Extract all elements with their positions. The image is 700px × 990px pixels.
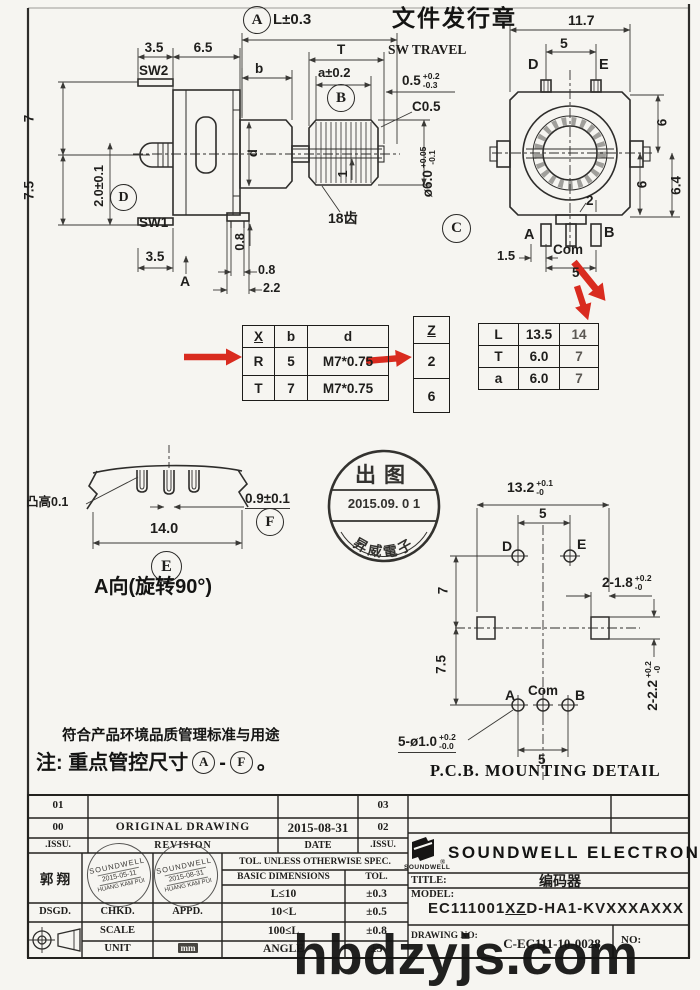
company-name: SOUNDWELL ELECTRONICS — [448, 844, 686, 863]
lta-row-a: a 6.0 7 — [479, 368, 599, 390]
dim-dia6-val: ø6.0 — [421, 170, 436, 197]
note-dash: - — [219, 752, 226, 774]
dim-b: b — [255, 62, 263, 77]
z-value-6: 6 — [414, 379, 450, 413]
pcb-hole-e: E — [577, 537, 586, 552]
balloon-d: D — [110, 184, 137, 211]
model-label: MODEL: — [411, 889, 454, 900]
dim-d-label: d — [246, 145, 260, 161]
lta-a-v2: 7 — [560, 368, 599, 390]
front-view — [490, 70, 652, 252]
drawing-sheet: 昇威電子 — [0, 0, 700, 990]
note-balloon-f: F — [230, 751, 253, 774]
lta-t-v1: 6.0 — [519, 346, 560, 368]
rev-row1-no: 01 — [28, 799, 88, 811]
dim-7-5: 7.5 — [23, 170, 38, 210]
note-balloon-a: A — [192, 751, 215, 774]
dim-dia6: ø6.0 +0.05-0.1 — [419, 127, 437, 217]
bump-label: 凸高0.1 — [26, 496, 68, 510]
soundwell-logo-icon — [412, 837, 434, 861]
lta-row-t: T 6.0 7 — [479, 346, 599, 368]
pcb-218-val: 2-1.8 — [602, 576, 633, 591]
dim-t: T — [337, 43, 345, 58]
dim-7: 7 — [23, 98, 38, 138]
pcb-13-2-dn: -0 — [536, 488, 553, 497]
label-sw-travel: SW TRAVEL — [388, 43, 466, 58]
basic-dims-label: BASIC DIMENSIONS — [222, 872, 345, 882]
unit-label: UNIT — [82, 943, 153, 954]
xbd-t: T — [243, 376, 275, 401]
pcb-hole-d: D — [502, 539, 512, 554]
a-view-caption: A向(旋转90°) — [94, 576, 212, 598]
pin-e-label: E — [599, 58, 609, 74]
title-label: TITLE: — [411, 875, 447, 886]
pcb-dim-13-2: 13.2 +0.1-0 — [507, 479, 553, 497]
red-arrow-front — [567, 256, 613, 307]
release-stamp-date: 2015.09. 0 1 — [337, 497, 431, 511]
lta-l-v1: 13.5 — [519, 324, 560, 346]
pcb-dim-2-2-2: 2-2.2 +0.2-0 — [644, 646, 662, 726]
pcb-caption: P.C.B. MOUNTING DETAIL — [430, 762, 661, 780]
rev-row2-date: 2015-08-31 — [278, 820, 358, 836]
unit-value: mm — [178, 943, 198, 953]
dim-2-2: 2.2 — [263, 282, 280, 296]
dim-0-8-v: 0.8 — [234, 227, 248, 257]
pcb-218-dn: -0 — [635, 583, 652, 592]
dim-l: L±0.3 — [273, 12, 311, 29]
pcb-hole-b: B — [575, 688, 585, 703]
dim-0-5-dn: -0.3 — [423, 81, 440, 90]
xbd-header-d: d — [308, 326, 389, 348]
release-stamp-top: 出图 — [343, 464, 425, 487]
z-value-2: 2 — [414, 344, 450, 379]
dim-1: 1 — [337, 166, 351, 182]
xbd-r: R — [243, 348, 275, 376]
model-part2-underlined: XZ — [505, 900, 526, 917]
section-a-label: A — [180, 274, 190, 289]
dim-2-0: 2.0±0.1 — [93, 156, 107, 216]
balloon-b: B — [327, 84, 355, 112]
dim-11-7: 11.7 — [568, 13, 594, 28]
xbd-r-b: 5 — [275, 348, 308, 376]
logo-reg-mark: ® — [440, 858, 445, 866]
pcb-222-dn: -0 — [653, 661, 662, 678]
side-view — [133, 79, 400, 228]
pcb-510-val: 5-ø1.0 — [398, 735, 437, 750]
red-arrow-xbd — [184, 349, 242, 366]
dim-14-0: 14.0 — [150, 522, 178, 538]
pin-a-label: A — [524, 228, 534, 244]
dim-6-5: 6.5 — [183, 41, 223, 56]
balloon-c: C — [442, 214, 471, 243]
pcb-view-dims — [450, 505, 660, 757]
lta-row-l: L 13.5 14 — [479, 324, 599, 346]
rev-issu-label: .ISSU. — [28, 840, 88, 850]
lta-t-v2: 7 — [560, 346, 599, 368]
xbd-table: X b d R 5 M7*0.75 T 7 M7*0.75 — [242, 325, 389, 401]
pcb-13-2-val: 13.2 — [507, 480, 534, 495]
appd-label: APPD. — [153, 906, 222, 917]
balloon-f: F — [256, 508, 284, 536]
lta-l: L — [479, 324, 519, 346]
model-value: EC111001XZD-HA1-KVXXXAXXX — [428, 901, 672, 918]
rev-row2-no2: 02 — [358, 821, 408, 833]
tol-label: TOL. — [345, 872, 408, 882]
rev-date-label: DATE — [278, 840, 358, 851]
pin-d-label: D — [528, 58, 538, 74]
lta-a: a — [479, 368, 519, 390]
xbd-row-t: T 7 M7*0.75 — [243, 376, 389, 401]
label-sw2: SW2 — [139, 64, 168, 79]
label-sw1: SW1 — [139, 216, 168, 231]
note-line1: 符合产品环境品质管理标准与用途 — [62, 729, 280, 745]
xbd-t-b: 7 — [275, 376, 308, 401]
xbd-header-x: X — [243, 326, 275, 348]
dim-6-right: 6 — [656, 102, 671, 142]
pin-com-label: Com — [553, 243, 583, 258]
pcb-dim-7-5: 7.5 — [435, 644, 450, 684]
pcb-dim-5-top: 5 — [539, 507, 547, 522]
pcb-hole-com: Com — [528, 684, 558, 699]
model-part3: D-HA1-KVXXXAXXX — [526, 900, 684, 917]
pcb-dim-5-dia: 5-ø1.0 +0.2-0.0 — [398, 733, 456, 753]
lta-table: L 13.5 14 T 6.0 7 a 6.0 7 — [478, 323, 599, 390]
pcb-hole-a: A — [505, 688, 515, 703]
lta-a-v1: 6.0 — [519, 368, 560, 390]
tol-row-2-range: 10<L — [222, 906, 345, 918]
rev-issu2-label: .ISSU. — [358, 840, 408, 850]
lta-t: T — [479, 346, 519, 368]
pcb-dim-7: 7 — [437, 570, 452, 610]
watermark-text: hbdzyjs.com — [293, 922, 638, 988]
rev-row2-no: 00 — [28, 821, 88, 833]
lta-l-v2: 14 — [560, 324, 599, 346]
dim-3-5-bot: 3.5 — [135, 250, 175, 265]
label-18-teeth: 18齿 — [328, 211, 358, 226]
balloon-a: A — [243, 6, 271, 34]
dim-5-bot: 5 — [572, 266, 580, 281]
dim-a: a±0.2 — [318, 66, 350, 80]
note-line2: 注: 重点管控尺寸 A - F 。 — [36, 751, 277, 774]
note-period: 。 — [257, 752, 277, 774]
chkd-label: CHKD. — [82, 906, 153, 917]
dim-1-5: 1.5 — [497, 249, 515, 263]
tol-row-2-value: ±0.5 — [345, 906, 408, 918]
note-line2-text: 注: 重点管控尺寸 — [36, 752, 188, 774]
dim-0-8-h: 0.8 — [258, 264, 275, 278]
pcb-view — [455, 525, 640, 780]
scale-label: SCALE — [82, 925, 153, 936]
dim-0-5-val: 0.5 — [402, 74, 421, 89]
dim-2: 2 — [586, 194, 594, 209]
release-title: 文件发行章 — [392, 6, 510, 31]
pcb-dim-2-1-8: 2-1.8 +0.2-0 — [602, 574, 652, 592]
projection-symbol — [29, 927, 80, 953]
dsgd-label: DSGD. — [28, 906, 82, 917]
dim-6-4: 6.4 — [670, 165, 685, 205]
dim-0-5: 0.5 +0.2-0.3 — [402, 72, 440, 90]
xbd-t-d: M7*0.75 — [308, 376, 389, 401]
title-value: 编码器 — [480, 874, 640, 889]
model-part1: EC111001 — [428, 900, 505, 917]
tol-header: TOL. UNLESS OTHERWISE SPEC. — [222, 857, 408, 867]
dim-5-top: 5 — [560, 36, 568, 51]
dim-6-inner: 6 — [636, 164, 651, 204]
xbd-r-d: M7*0.75 — [308, 348, 389, 376]
dim-0-9: 0.9±0.1 — [245, 492, 290, 509]
rev-row1-no2: 03 — [358, 799, 408, 811]
xbd-row-r: R 5 M7*0.75 — [243, 348, 389, 376]
pcb-510-dn: -0.0 — [439, 742, 456, 751]
z-header: Z — [414, 317, 450, 344]
dim-3-5-top: 3.5 — [134, 41, 174, 56]
pin-b-label: B — [604, 226, 614, 242]
tol-row-1-value: ±0.3 — [345, 888, 408, 900]
xbd-header-b: b — [275, 326, 308, 348]
pcb-222-val: 2-2.2 — [646, 680, 661, 711]
a-view — [87, 445, 248, 509]
a-view-dims — [86, 477, 244, 549]
rev-row2-desc: ORIGINAL DRAWING — [88, 821, 278, 833]
z-table: Z 2 6 — [413, 316, 450, 413]
dim-c0-5: C0.5 — [412, 100, 441, 115]
dim-dia6-dn: -0.1 — [428, 147, 437, 169]
tol-row-1-range: L≤10 — [222, 888, 345, 900]
designer-name: 郭 翔 — [28, 868, 82, 888]
